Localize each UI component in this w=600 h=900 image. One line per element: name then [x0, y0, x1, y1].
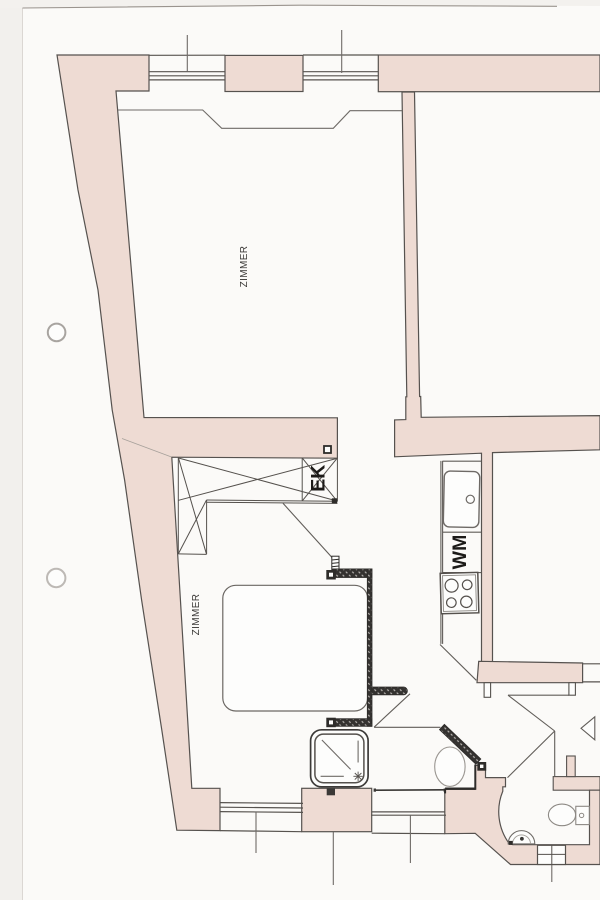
svg-text:EK: EK — [308, 465, 330, 492]
svg-text:WM: WM — [449, 535, 471, 570]
svg-text:ZIMMER: ZIMMER — [239, 246, 250, 288]
svg-text:ZIMMER: ZIMMER — [191, 594, 202, 636]
